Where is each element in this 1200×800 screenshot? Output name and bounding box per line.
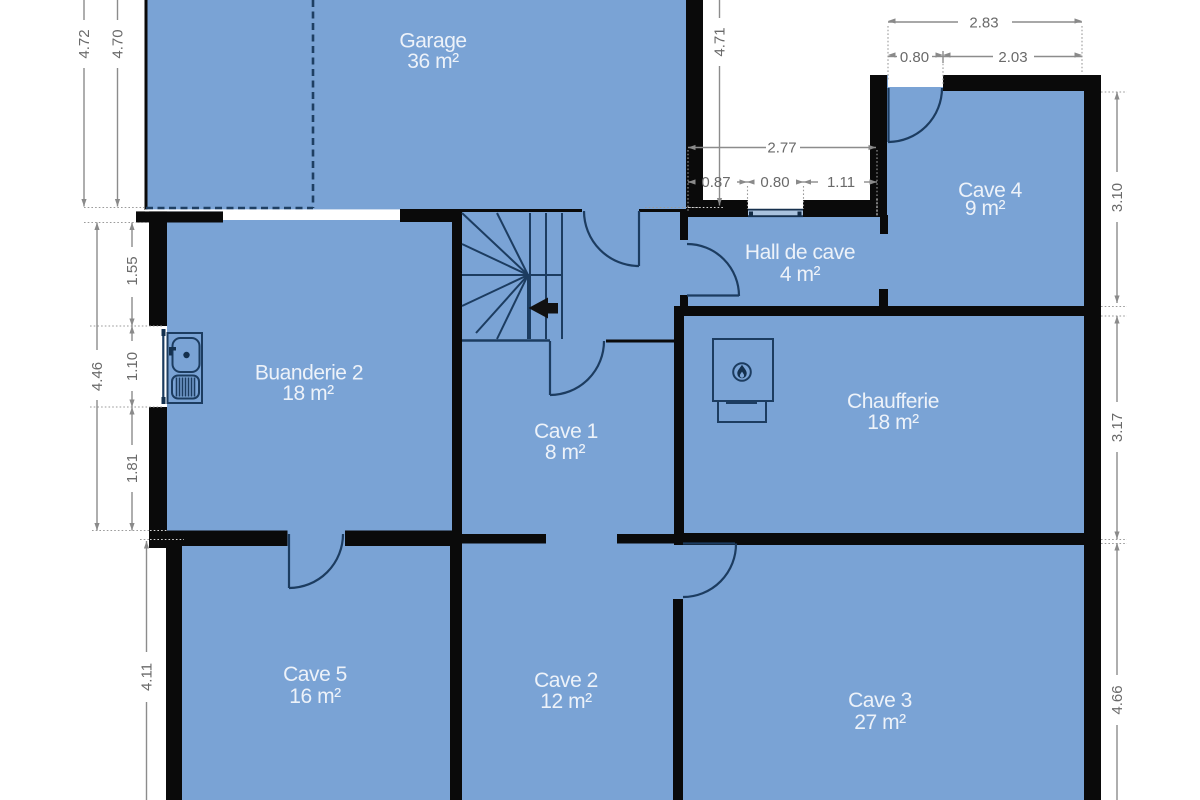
svg-text:Hall de cave: Hall de cave: [745, 241, 855, 264]
svg-text:Cave 2: Cave 2: [534, 669, 598, 692]
svg-text:4.46: 4.46: [89, 362, 106, 391]
svg-text:2.77: 2.77: [767, 140, 796, 157]
svg-text:36 m²: 36 m²: [407, 50, 459, 73]
svg-text:16 m²: 16 m²: [289, 685, 341, 708]
svg-text:Cave 3: Cave 3: [848, 689, 912, 712]
svg-text:12 m²: 12 m²: [540, 690, 592, 713]
svg-text:18 m²: 18 m²: [867, 411, 919, 434]
svg-text:0.80: 0.80: [760, 174, 789, 191]
svg-text:3.17: 3.17: [1109, 413, 1126, 442]
svg-text:2.03: 2.03: [998, 49, 1027, 66]
svg-text:3.10: 3.10: [1109, 183, 1126, 212]
svg-text:4.66: 4.66: [1109, 685, 1126, 714]
svg-text:1.55: 1.55: [124, 256, 141, 285]
svg-text:Cave 1: Cave 1: [534, 420, 598, 443]
svg-text:Chaufferie: Chaufferie: [847, 390, 939, 413]
svg-text:4.71: 4.71: [712, 27, 729, 56]
svg-text:27 m²: 27 m²: [854, 711, 906, 734]
svg-text:4.70: 4.70: [110, 29, 127, 58]
svg-text:18 m²: 18 m²: [282, 382, 334, 405]
svg-text:2.83: 2.83: [969, 15, 998, 32]
svg-text:1.10: 1.10: [124, 352, 141, 381]
svg-text:1.11: 1.11: [827, 174, 855, 191]
svg-text:0.87: 0.87: [701, 174, 730, 191]
svg-text:4.11: 4.11: [139, 663, 156, 691]
svg-text:Cave 5: Cave 5: [283, 663, 347, 686]
svg-text:8 m²: 8 m²: [545, 441, 586, 464]
svg-text:1.81: 1.81: [124, 454, 141, 483]
svg-text:9 m²: 9 m²: [965, 197, 1006, 220]
svg-text:4.72: 4.72: [76, 29, 93, 58]
svg-text:0.80: 0.80: [900, 49, 929, 66]
svg-text:4 m²: 4 m²: [780, 263, 821, 286]
